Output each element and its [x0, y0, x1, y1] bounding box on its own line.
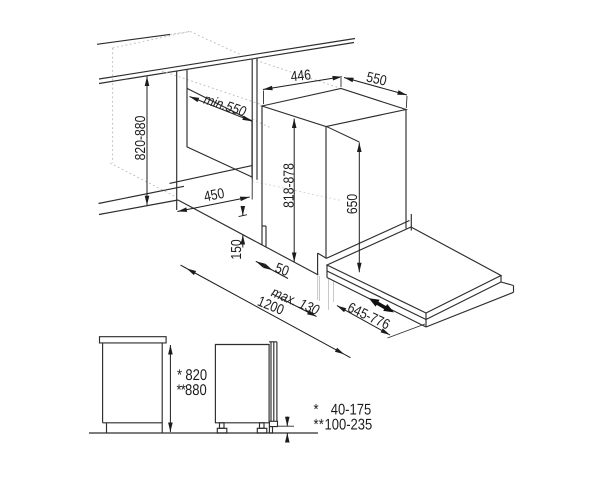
- svg-text:150: 150: [229, 239, 245, 259]
- svg-text:880: 880: [185, 382, 207, 399]
- svg-text:818-878: 818-878: [281, 163, 297, 208]
- svg-text:446: 446: [290, 67, 312, 85]
- svg-text:*: *: [314, 417, 319, 434]
- svg-text:*: *: [319, 417, 324, 434]
- svg-text:100-235: 100-235: [325, 417, 373, 434]
- svg-text:820-880: 820-880: [133, 116, 149, 161]
- svg-text:650: 650: [345, 194, 361, 214]
